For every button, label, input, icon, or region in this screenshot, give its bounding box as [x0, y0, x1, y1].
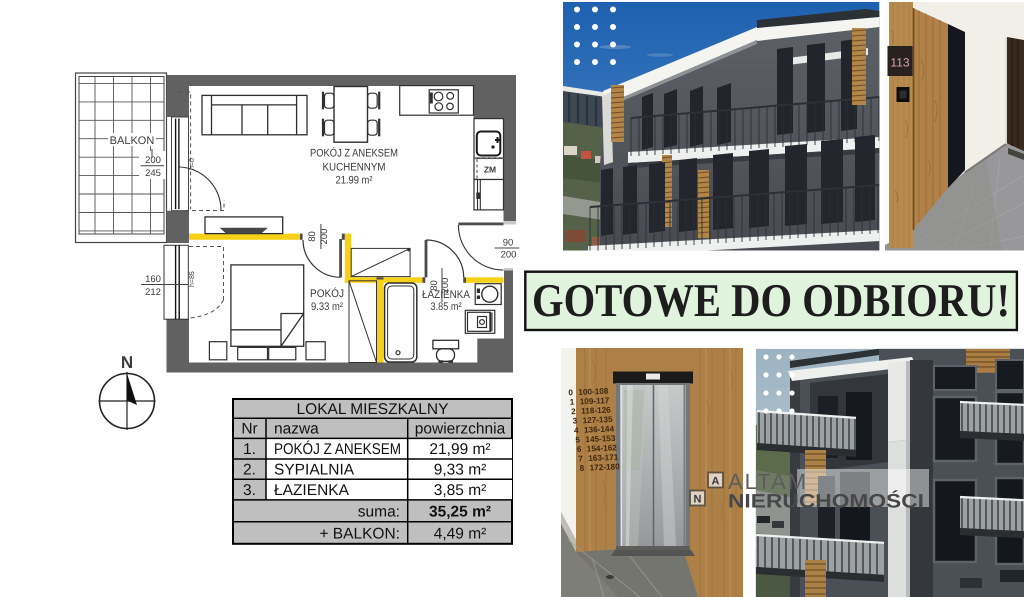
svg-text:6: 6 [577, 445, 582, 454]
svg-text:172-180: 172-180 [589, 462, 620, 472]
svg-text:ŁAZIENKA: ŁAZIENKA [274, 482, 350, 499]
svg-text:+ BALKON:: + BALKON: [319, 526, 400, 543]
svg-text:3.: 3. [243, 482, 256, 499]
svg-text:Nr: Nr [241, 421, 257, 438]
svg-text:LOKAL MIESZKALNY: LOKAL MIESZKALNY [297, 401, 449, 418]
svg-text:2.: 2. [243, 462, 256, 479]
svg-text:160: 160 [145, 274, 161, 285]
svg-text:POKÓJ Z ANEKSEM: POKÓJ Z ANEKSEM [310, 147, 398, 160]
svg-text:9.33 m²: 9.33 m² [311, 301, 343, 313]
svg-text:3.85 m²: 3.85 m² [431, 301, 462, 313]
svg-text:7: 7 [578, 454, 583, 463]
svg-text:200: 200 [501, 250, 517, 261]
svg-text:4,49 m²: 4,49 m² [434, 526, 487, 543]
svg-text:245: 245 [145, 168, 161, 179]
svg-text:POKÓJ Z ANEKSEM: POKÓJ Z ANEKSEM [274, 440, 401, 458]
svg-text:0: 0 [568, 388, 573, 397]
svg-text:A: A [712, 476, 720, 488]
svg-text:90: 90 [503, 238, 514, 249]
svg-text:NIERUCHOMOŚCI: NIERUCHOMOŚCI [728, 490, 924, 513]
svg-text:KUCHENNYM: KUCHENNYM [323, 162, 386, 174]
svg-text:200: 200 [145, 155, 161, 166]
svg-text:212: 212 [145, 287, 161, 298]
svg-text:1: 1 [570, 398, 575, 407]
svg-text:1.: 1. [243, 441, 256, 458]
svg-text:ŁAZIENKA: ŁAZIENKA [422, 289, 471, 301]
svg-text:N: N [121, 353, 133, 372]
svg-text:h=0: h=0 [188, 158, 196, 170]
svg-text:POKÓJ: POKÓJ [310, 287, 344, 300]
svg-text:35,25 m²: 35,25 m² [429, 504, 491, 521]
svg-text:BALKON: BALKON [110, 135, 155, 147]
svg-text:21.99 m²: 21.99 m² [336, 175, 373, 187]
svg-text:h=85: h=85 [188, 271, 196, 287]
svg-text:SYPIALNIA: SYPIALNIA [274, 462, 355, 479]
svg-text:nazwa: nazwa [274, 421, 319, 438]
svg-text:5: 5 [575, 435, 580, 444]
svg-text:powierzchnia: powierzchnia [415, 421, 506, 438]
svg-text:GOTOWE DO ODBIORU!: GOTOWE DO ODBIORU! [532, 275, 1010, 327]
svg-text:2: 2 [571, 407, 576, 416]
svg-text:21,99 m²: 21,99 m² [429, 441, 490, 458]
svg-text:200: 200 [319, 229, 330, 245]
svg-text:113: 113 [890, 56, 909, 70]
svg-text:ZM: ZM [484, 165, 496, 175]
svg-text:9,33 m²: 9,33 m² [434, 462, 487, 479]
svg-text:3: 3 [572, 416, 577, 425]
svg-text:3,85 m²: 3,85 m² [434, 482, 487, 499]
svg-text:80: 80 [307, 231, 318, 242]
svg-text:8: 8 [579, 464, 584, 473]
svg-text:N: N [694, 494, 702, 506]
svg-text:suma:: suma: [358, 504, 400, 521]
svg-text:4: 4 [574, 426, 579, 435]
